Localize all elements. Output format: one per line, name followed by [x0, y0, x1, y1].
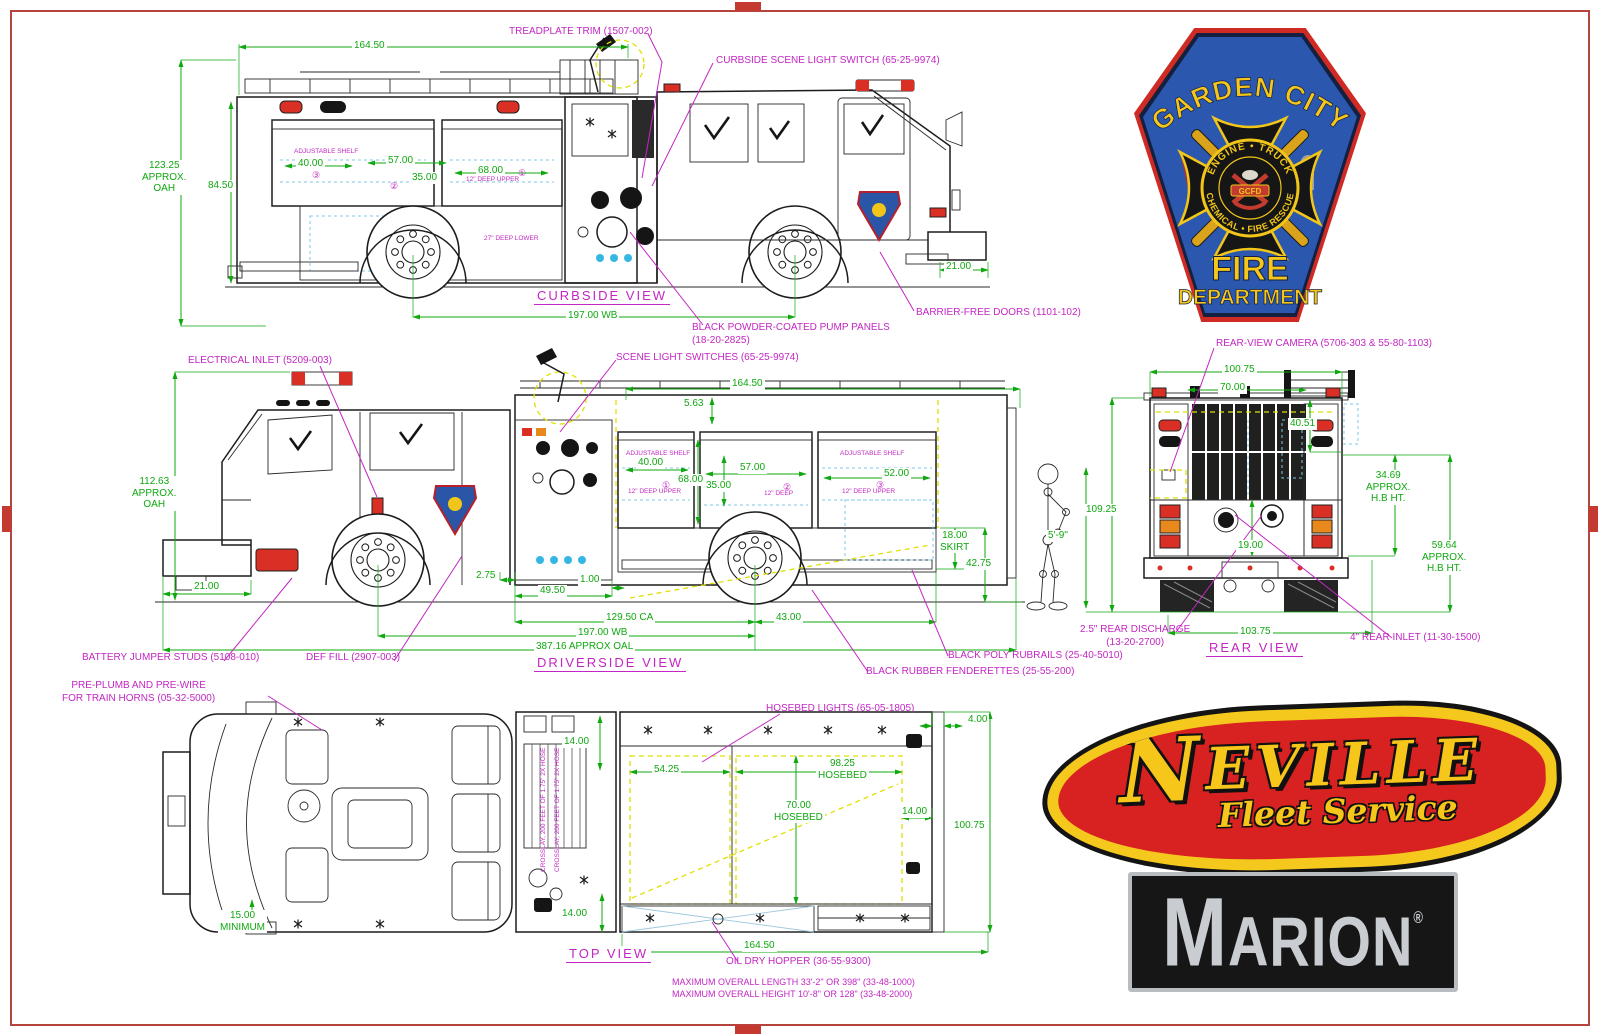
- marion-registered-mark: ®: [1413, 908, 1424, 927]
- view-title-curbside: CURBSIDE VIEW: [534, 288, 670, 305]
- note-driverside-deep-upper3: 12" DEEP UPPER: [842, 488, 895, 495]
- dim-driverside-100: 1.00: [578, 574, 601, 586]
- marion-rest: ARION: [1228, 901, 1413, 980]
- marion-logo: MARION®: [1128, 872, 1458, 992]
- dim-driverside-wheelbase: 197.00 WB: [576, 627, 629, 639]
- neville-red-field: NEVILLE Fleet Service: [1056, 712, 1549, 867]
- note-curbside-shelf: ADJUSTABLE SHELF: [294, 148, 358, 155]
- keynote-curbside-1: ①: [518, 168, 526, 179]
- dim-rear-hb2: 59.64 APPROX. H.B HT.: [1420, 540, 1468, 575]
- callout-treadplate-trim: TREADPLATE TRIM (1507-002): [509, 26, 653, 39]
- callout-poly-rubrails: BLACK POLY RUBRAILS (25-40-5010): [948, 650, 1123, 663]
- callout-barrier-doors: BARRIER-FREE DOORS (1101-102): [916, 307, 1081, 320]
- dim-rear-hb1: 34.69 APPROX. H.B HT.: [1364, 470, 1412, 505]
- dim-driverside-oal: 387.16 APPROX OAL: [534, 641, 635, 653]
- dim-curbside-57: 57.00: [386, 155, 415, 167]
- note-crosslay-1: CROSSLAY, 200 FEET OF 1.75" 2X HOSE: [540, 748, 547, 872]
- cab-door-decal: [858, 192, 900, 240]
- callout-rear-camera: REAR-VIEW CAMERA (5706-303 & 55-80-1103): [1216, 338, 1432, 351]
- dim-driverside-4275: 42.75: [964, 558, 993, 570]
- dim-top-400: 4.00: [966, 714, 989, 726]
- patch-department-text: DEPARTMENT: [1178, 286, 1322, 309]
- note-max-overall-length: MAXIMUM OVERALL LENGTH 33'-2" OR 398" (3…: [672, 977, 915, 987]
- callout-oil-dry-hopper: OIL DRY HOPPER (36-55-9300): [726, 956, 871, 969]
- note-curbside-deep-lower: 27" DEEP LOWER: [484, 235, 539, 242]
- dim-driverside-40: 40.00: [636, 457, 665, 469]
- dim-driverside-275: 2.75: [474, 570, 497, 582]
- driverside-truck-drawing: [155, 348, 1025, 672]
- dim-top-1400c: 14.00: [560, 908, 589, 920]
- dim-rear-oah: 109.25: [1084, 504, 1119, 516]
- note-max-overall-height: MAXIMUM OVERALL HEIGHT 10'-8" OR 128" (3…: [672, 989, 912, 999]
- dim-driverside-35: 35.00: [704, 480, 733, 492]
- patch-fire-text: FIRE: [1211, 250, 1288, 288]
- dim-driverside-563: 5.63: [682, 398, 705, 410]
- keynote-curbside-3: ③: [312, 170, 320, 181]
- callout-train-horns: PRE-PLUMB AND PRE-WIRE FOR TRAIN HORNS (…: [62, 680, 215, 705]
- dim-rear-1900: 19.00: [1236, 540, 1265, 552]
- dim-driverside-4300: 43.00: [774, 612, 803, 624]
- neville-logo: NEVILLE Fleet Service: [1039, 695, 1565, 883]
- view-title-top: TOP VIEW: [566, 946, 651, 963]
- dim-driverside-52: 52.00: [882, 468, 911, 480]
- dim-top-hosebed-length: 98.25 HOSEBED: [816, 758, 869, 781]
- dim-curbside-35: 35.00: [410, 172, 439, 184]
- patch-artwork: GARDEN CITY ENGINE • TRUCK: [1134, 28, 1366, 322]
- dim-mannequin-height: 5'-9": [1046, 530, 1070, 542]
- callout-def-fill: DEF FILL (2907-003): [306, 652, 400, 665]
- callout-hosebed-lights: HOSEBED LIGHTS (65-05-1805): [766, 703, 914, 716]
- note-driverside-deep-upper1: 12" DEEP UPPER: [628, 488, 681, 495]
- dim-curbside-body-height: 84.50: [206, 180, 235, 192]
- patch-gcfd-text: GCFD: [1239, 187, 1262, 196]
- callout-rear-inlet: 4" REAR INLET (11-30-1500): [1350, 632, 1480, 645]
- callout-rear-discharge: 2.5" REAR DISCHARGE (13-20-2700): [1080, 624, 1190, 649]
- crew-door-decal: [434, 486, 476, 534]
- dim-top-hosebed-width: 70.00 HOSEBED: [772, 800, 825, 823]
- dim-driverside-skirt: 18.00 SKIRT: [938, 530, 971, 553]
- callout-scene-switches: SCENE LIGHT SWITCHES (65-25-9974): [616, 352, 799, 365]
- neville-black-outline: NEVILLE Fleet Service: [1039, 695, 1565, 883]
- dim-top-5425: 54.25: [652, 764, 681, 776]
- blueprint-page: TREADPLATE TRIM (1507-002) CURBSIDE SCEN…: [0, 0, 1600, 1036]
- note-curbside-deep-upper: 12" DEEP UPPER: [466, 176, 519, 183]
- callout-battery-studs: BATTERY JUMPER STUDS (5108-010): [82, 652, 259, 665]
- dim-curbside-68: 68.00: [476, 165, 505, 177]
- dim-rear-10375: 103.75: [1238, 626, 1273, 638]
- keynote-curbside-2: ②: [390, 181, 398, 192]
- dim-driverside-length: 164.50: [730, 378, 765, 390]
- dim-top-length: 164.50: [742, 940, 777, 952]
- dim-top-1400a: 14.00: [562, 736, 591, 748]
- marion-initial: M: [1162, 876, 1228, 986]
- note-driverside-deep2: 12" DEEP: [764, 490, 793, 497]
- dim-driverside-front-overhang: 21.00: [192, 581, 221, 593]
- note-driverside-shelf1: ADJUSTABLE SHELF: [626, 450, 690, 457]
- dim-driverside-oah: 112.63 APPROX. OAH: [130, 476, 178, 511]
- dim-top-10075: 100.75: [952, 820, 987, 832]
- dim-top-1400b: 14.00: [900, 806, 929, 818]
- neville-yellow-ring: NEVILLE Fleet Service: [1044, 700, 1559, 878]
- marion-wordmark: MARION®: [1162, 875, 1424, 989]
- dim-curbside-front-overhang: 21.00: [944, 261, 973, 273]
- dim-curbside-oah: 123.25 APPROX. OAH: [140, 160, 188, 195]
- dim-driverside-4950: 49.50: [538, 585, 567, 597]
- dim-rear-10075: 100.75: [1222, 364, 1257, 376]
- callout-rubber-fenderettes: BLACK RUBBER FENDERETTES (25-55-200): [866, 666, 1074, 679]
- dim-curbside-wheelbase: 197.00 WB: [566, 310, 619, 322]
- view-title-driverside: DRIVERSIDE VIEW: [534, 655, 686, 672]
- neville-initial: N: [1117, 716, 1207, 823]
- dim-driverside-ca: 129.50 CA: [604, 612, 655, 624]
- callout-electrical-inlet: ELECTRICAL INLET (5209-003): [188, 355, 332, 368]
- dim-curbside-40: 40.00: [296, 158, 325, 170]
- patch-maltese-cross: ENGINE • TRUCK CHEMICAL • FIRE RESCUE GC…: [1180, 118, 1320, 258]
- dim-driverside-57: 57.00: [738, 462, 767, 474]
- dim-driverside-68: 68.00: [676, 474, 705, 486]
- view-title-rear: REAR VIEW: [1206, 640, 1303, 657]
- dim-curbside-length: 164.50: [352, 40, 387, 52]
- garden-city-fd-patch: GARDEN CITY ENGINE • TRUCK: [1134, 28, 1366, 322]
- dim-rear-7000: 70.00: [1218, 382, 1247, 394]
- callout-pump-panels: BLACK POWDER-COATED PUMP PANELS (18-20-2…: [692, 322, 890, 347]
- dim-top-minimum: 15.00 MINIMUM: [218, 910, 267, 933]
- callout-curbside-scene-switch: CURBSIDE SCENE LIGHT SWITCH (65-25-9974): [716, 55, 940, 68]
- note-crosslay-2: CROSSLAY, 200 FEET OF 1.75" 2X HOSE: [554, 748, 561, 872]
- curbside-truck-drawing: [181, 34, 990, 326]
- note-driverside-shelf3: ADJUSTABLE SHELF: [840, 450, 904, 457]
- dim-rear-4051: 40.51: [1288, 418, 1317, 430]
